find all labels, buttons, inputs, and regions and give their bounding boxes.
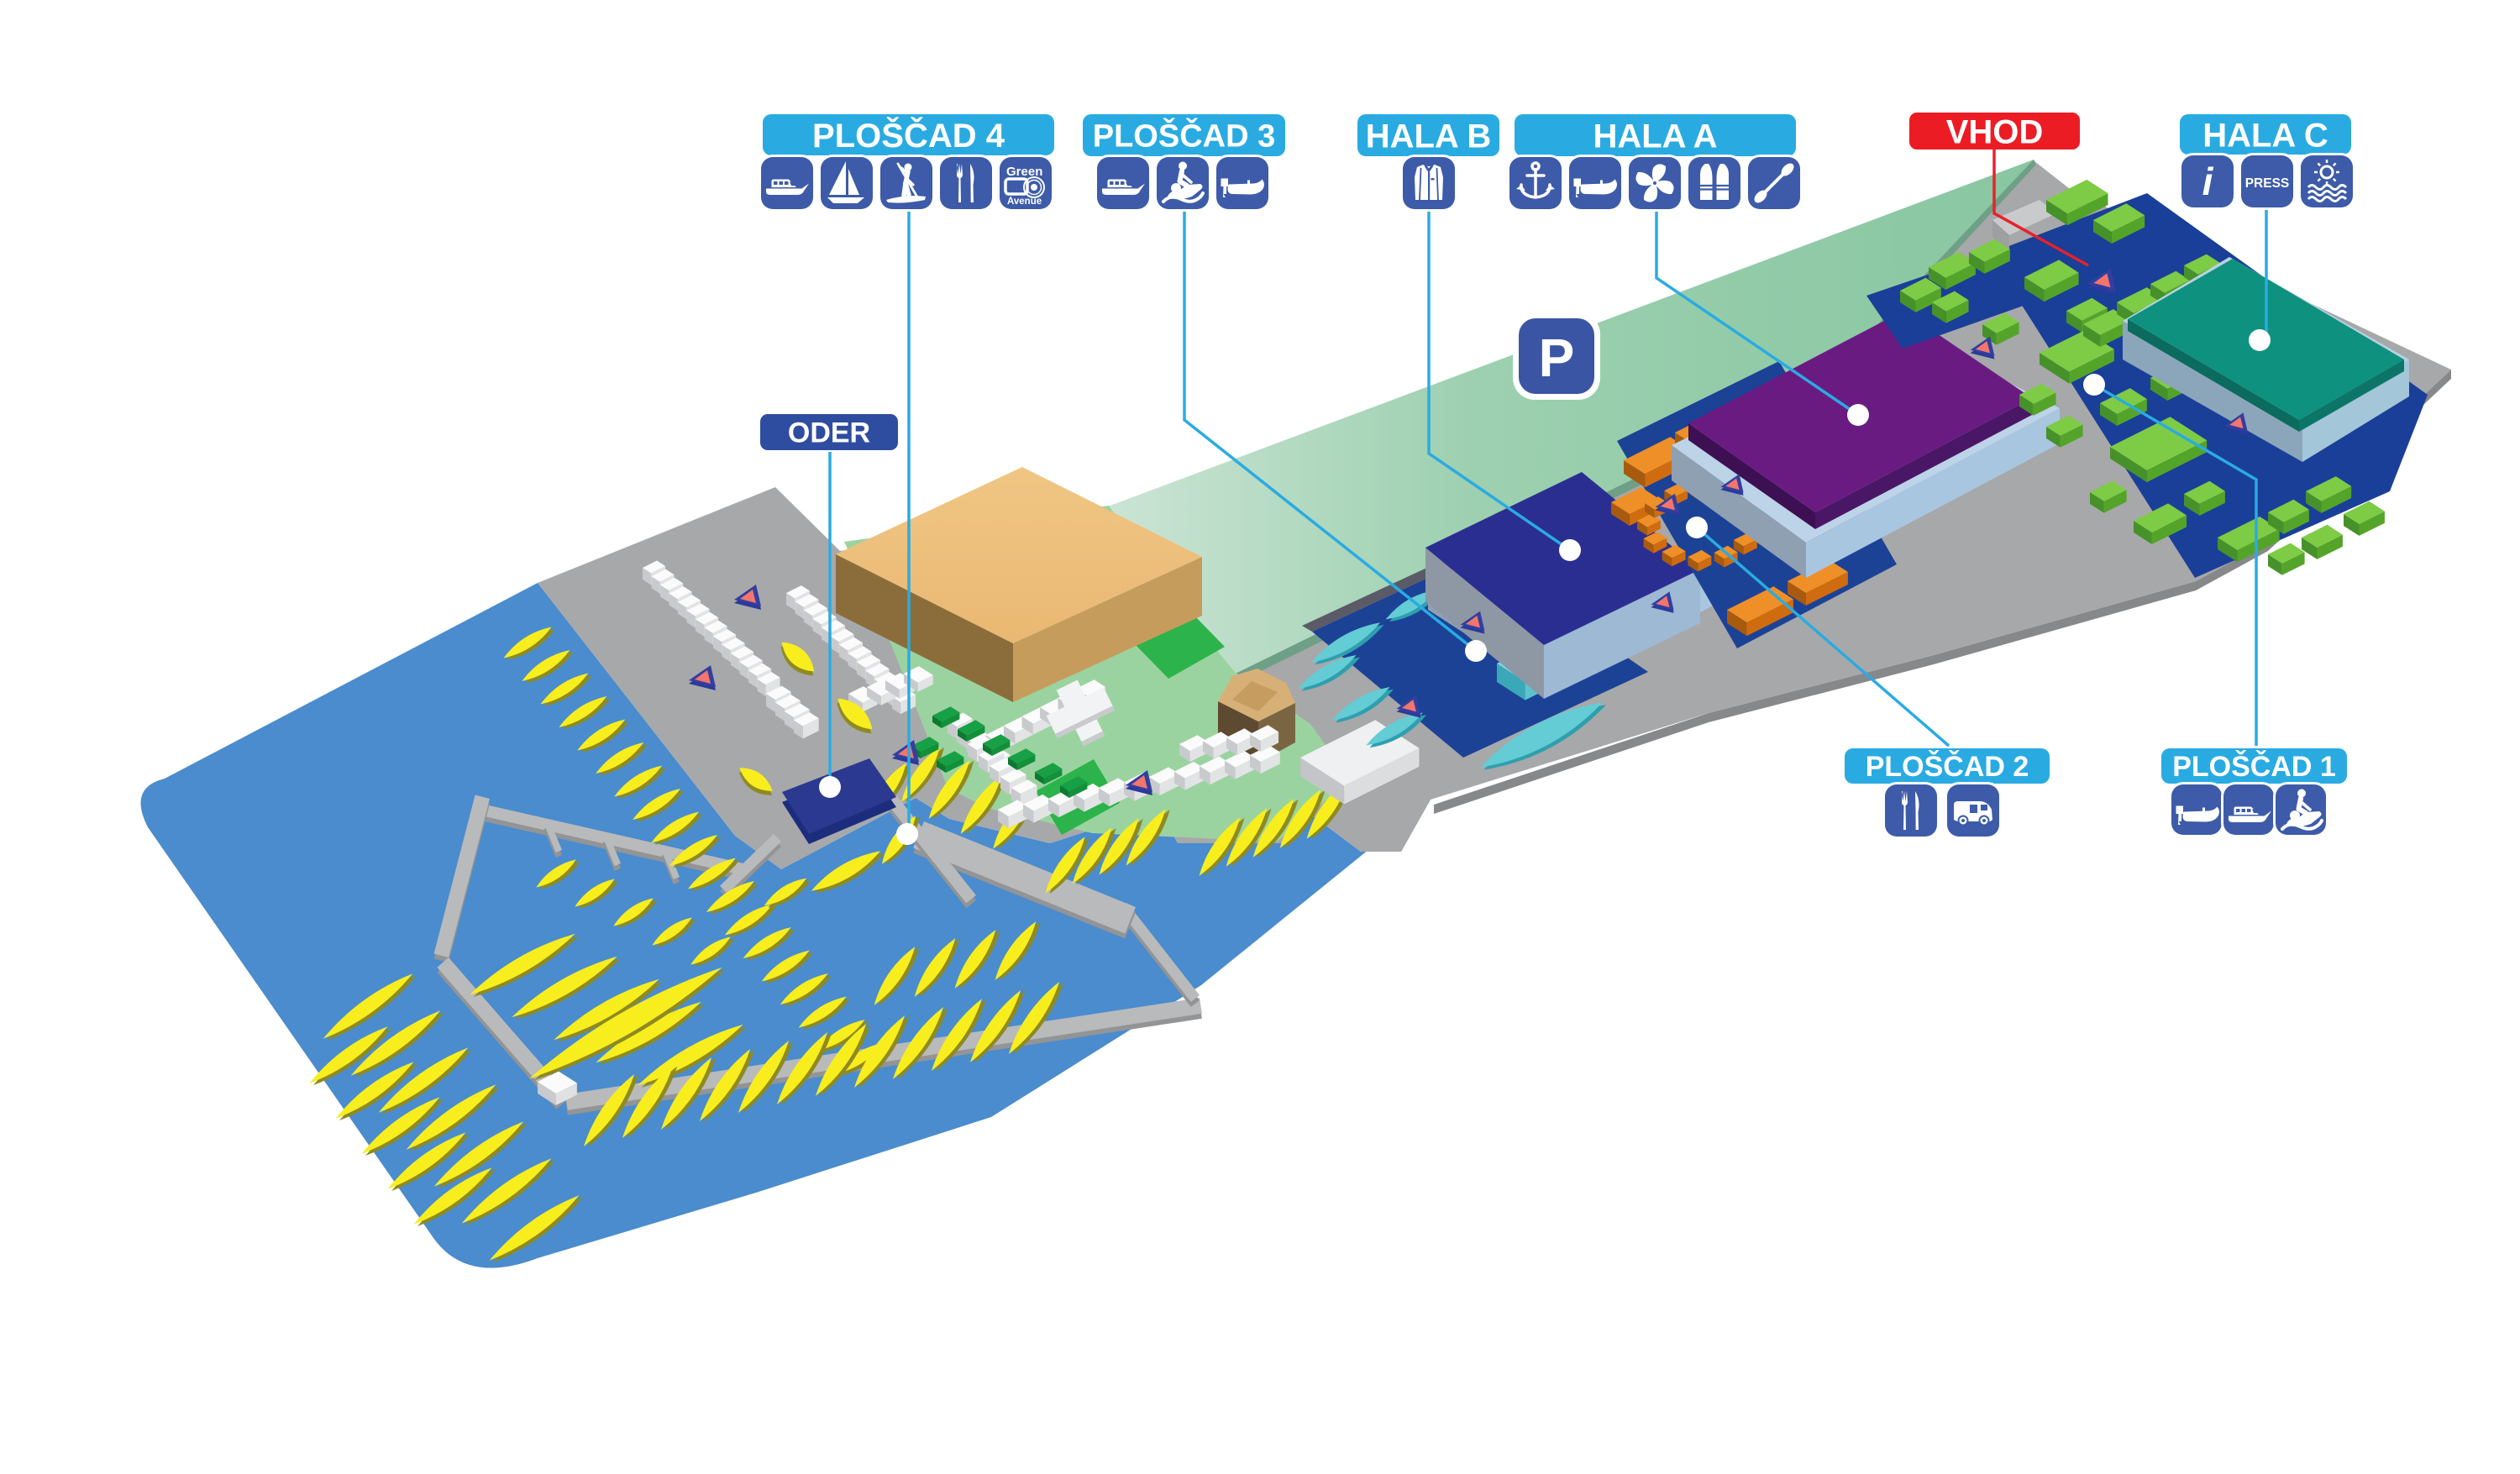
svg-text:PLOŠČAD 4: PLOŠČAD 4 — [812, 116, 1005, 155]
svg-text:Avenue: Avenue — [1007, 197, 1042, 207]
svg-text:VHOD: VHOD — [1946, 113, 2044, 150]
svg-text:P: P — [1539, 328, 1575, 388]
svg-text:PLOŠČAD 1: PLOŠČAD 1 — [2172, 750, 2336, 783]
svg-text:i: i — [2202, 160, 2214, 203]
svg-text:ODER: ODER — [788, 417, 870, 449]
svg-text:PLOŠČAD 3: PLOŠČAD 3 — [1093, 117, 1275, 155]
svg-text:PRESS: PRESS — [2245, 176, 2290, 191]
svg-text:HALA C: HALA C — [2202, 117, 2328, 154]
svg-text:Green: Green — [1006, 165, 1042, 179]
svg-text:PLOŠČAD 2: PLOŠČAD 2 — [1866, 750, 2029, 783]
svg-text:HALA B: HALA B — [1366, 118, 1492, 155]
svg-text:HALA A: HALA A — [1593, 118, 1717, 155]
